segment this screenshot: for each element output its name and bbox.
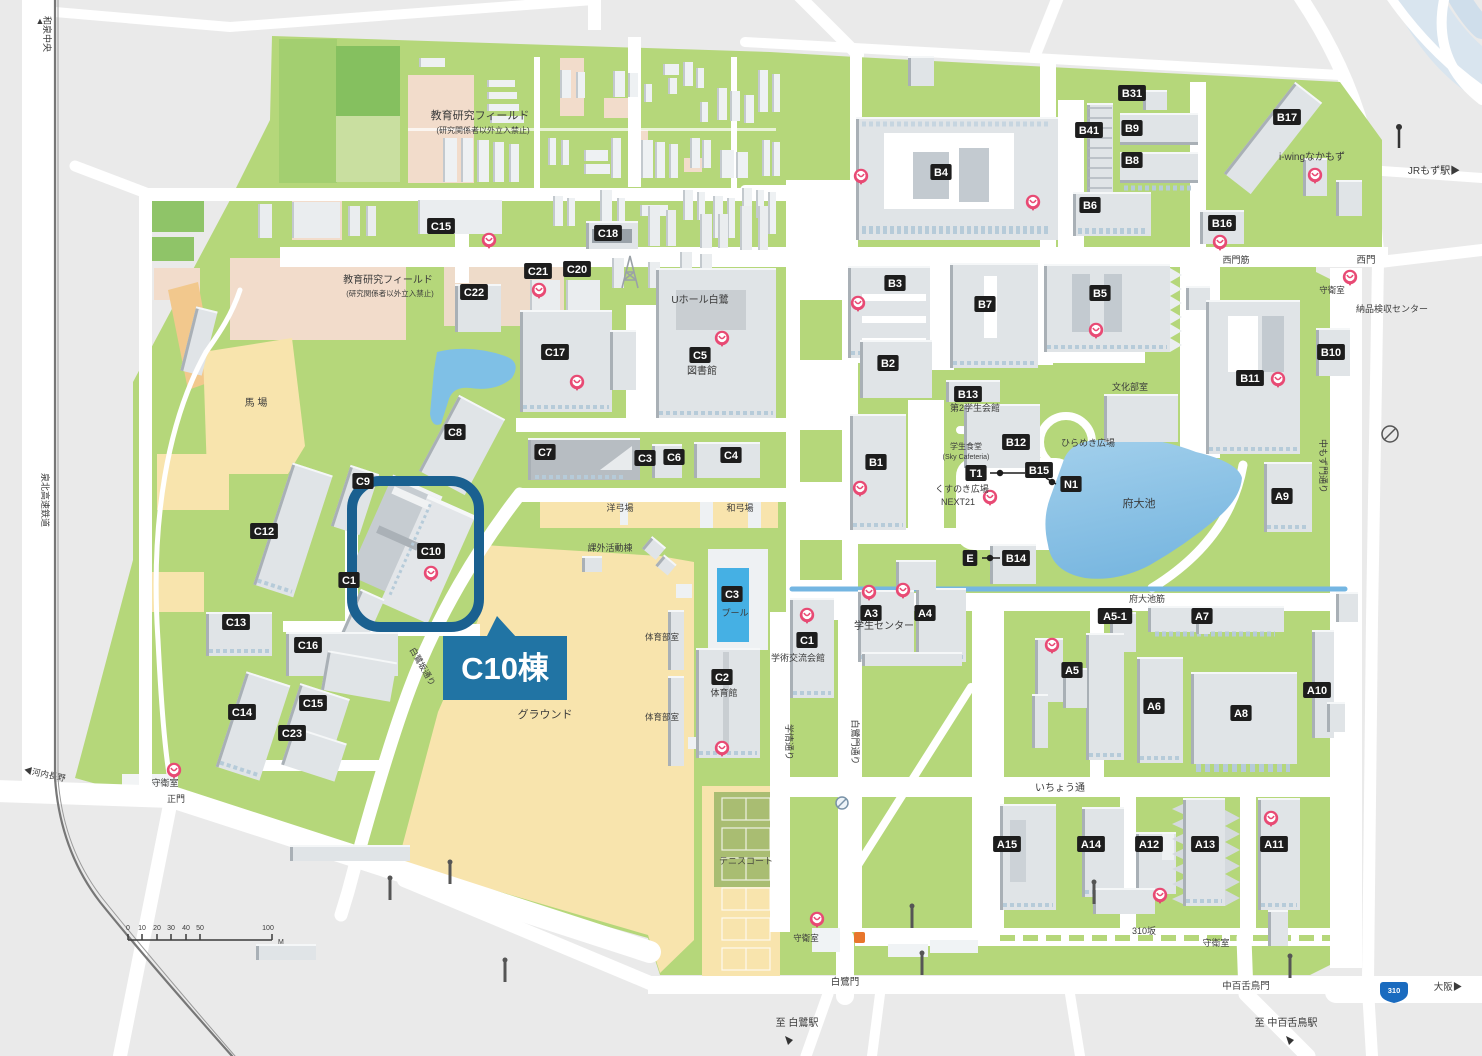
svg-text:C3: C3 [725,589,739,601]
svg-text:T1: T1 [970,468,983,480]
svg-text:ひらめき広場: ひらめき広場 [1061,437,1115,448]
svg-text:至 中百舌鳥駅: 至 中百舌鳥駅 [1255,1016,1318,1029]
svg-text:B3: B3 [888,278,902,290]
svg-text:府大池筋: 府大池筋 [1129,593,1165,604]
svg-text:C9: C9 [356,476,370,488]
svg-text:グラウンド: グラウンド [518,707,573,721]
svg-text:C22: C22 [464,287,484,299]
svg-text:B8: B8 [1125,155,1139,167]
svg-text:B14: B14 [1006,553,1027,565]
svg-text:C4: C4 [724,450,739,462]
svg-text:至 白鷺駅: 至 白鷺駅 [776,1016,819,1029]
svg-text:B7: B7 [978,299,992,311]
svg-text:いちょう通: いちょう通 [1035,782,1085,794]
svg-text:体育部室: 体育部室 [645,632,680,642]
svg-text:C23: C23 [282,728,302,740]
svg-text:C5: C5 [693,350,707,362]
svg-text:20: 20 [153,925,161,932]
svg-text:C18: C18 [598,228,618,240]
svg-text:100: 100 [262,925,274,932]
svg-text:A13: A13 [1195,839,1215,851]
svg-text:中百舌鳥門: 中百舌鳥門 [1222,980,1270,992]
svg-text:A12: A12 [1139,839,1159,851]
svg-text:310坂: 310坂 [1132,926,1156,936]
svg-text:B1: B1 [869,457,883,469]
svg-text:N1: N1 [1064,479,1078,491]
svg-text:府大池: 府大池 [1123,496,1156,510]
svg-text:くすのき広場: くすのき広場 [935,483,989,494]
svg-text:文化部室: 文化部室 [1112,381,1148,392]
svg-text:守衛室: 守衛室 [151,777,178,788]
svg-text:課外活動棟: 課外活動棟 [587,542,632,553]
svg-text:C17: C17 [545,347,565,359]
svg-text:B11: B11 [1240,373,1260,385]
svg-text:A8: A8 [1234,708,1248,720]
svg-text:B10: B10 [1321,347,1341,359]
svg-text:図書館: 図書館 [687,364,717,377]
svg-text:C14: C14 [232,707,253,719]
svg-text:C15: C15 [431,221,451,233]
svg-text:泉北高速鉄道: 泉北高速鉄道 [40,473,51,527]
svg-text:B4: B4 [934,167,949,179]
svg-text:B5: B5 [1093,288,1107,300]
svg-text:和弓場: 和弓場 [726,502,753,513]
svg-text:守衛室: 守衛室 [1319,285,1345,295]
svg-text:C21: C21 [528,266,548,278]
svg-text:教育研究フィールド: 教育研究フィールド [343,273,433,286]
svg-text:B12: B12 [1006,437,1026,449]
svg-text:A6: A6 [1147,701,1161,713]
svg-text:(研究関係者以外立入禁止): (研究関係者以外立入禁止) [436,125,530,135]
svg-text:310: 310 [1388,986,1401,995]
svg-text:白鷺門: 白鷺門 [831,976,860,988]
svg-text:Uホール白鷺: Uホール白鷺 [671,293,728,306]
svg-text:体育部室: 体育部室 [645,712,680,722]
svg-text:中もず門通り: 中もず門通り [1318,439,1329,493]
svg-text:30: 30 [167,925,175,932]
svg-text:和泉中央: 和泉中央 [42,16,53,52]
svg-text:C10棟: C10棟 [461,651,550,686]
svg-text:C20: C20 [567,264,587,276]
svg-text:JRもず駅▶: JRもず駅▶ [1408,165,1460,177]
svg-text:C7: C7 [538,447,552,459]
svg-text:40: 40 [182,925,190,932]
svg-text:B41: B41 [1079,125,1099,137]
svg-text:西門: 西門 [1356,255,1375,266]
svg-text:C15: C15 [303,698,323,710]
svg-text:(Sky Cafeteria): (Sky Cafeteria) [943,454,990,461]
svg-text:NEXT21: NEXT21 [941,497,975,507]
svg-text:学生食堂: 学生食堂 [950,441,982,451]
svg-text:C1: C1 [800,635,814,647]
svg-text:A11: A11 [1264,839,1284,851]
svg-text:C10: C10 [421,546,441,558]
svg-text:B17: B17 [1277,112,1297,124]
svg-text:A5-1: A5-1 [1103,611,1127,623]
svg-text:正門: 正門 [167,794,185,804]
svg-text:A9: A9 [1275,491,1289,503]
svg-text:大阪▶: 大阪▶ [1434,981,1463,993]
svg-text:A15: A15 [997,839,1017,851]
svg-text:B2: B2 [881,358,895,370]
svg-text:第2学生会館: 第2学生会館 [950,402,1000,413]
svg-text:B9: B9 [1125,123,1139,135]
svg-text:洋弓場: 洋弓場 [606,502,633,513]
svg-text:プール: プール [721,608,748,618]
svg-text:C8: C8 [448,427,462,439]
svg-text:M: M [278,939,284,946]
svg-text:E: E [966,553,973,565]
svg-text:テニスコート: テニスコート [719,856,773,866]
svg-text:学生センター: 学生センター [854,619,914,632]
svg-text:C6: C6 [667,452,681,464]
svg-text:(研究関係者以外立入禁止): (研究関係者以外立入禁止) [346,288,434,298]
svg-text:C2: C2 [715,672,729,684]
svg-text:納品検収センター: 納品検収センター [1356,303,1428,314]
svg-text:A7: A7 [1195,611,1209,623]
svg-text:西門筋: 西門筋 [1222,254,1249,265]
svg-text:A14: A14 [1081,839,1102,851]
svg-text:教育研究フィールド: 教育研究フィールド [431,108,530,122]
svg-text:体育館: 体育館 [710,687,737,698]
svg-text:学情通り: 学情通り [784,724,795,760]
svg-text:0: 0 [126,925,130,932]
svg-text:白鷺門通り: 白鷺門通り [850,719,861,764]
svg-text:50: 50 [196,925,204,932]
svg-text:C13: C13 [226,617,246,629]
svg-text:C1: C1 [342,575,356,587]
svg-text:A10: A10 [1307,685,1327,697]
svg-text:B31: B31 [1122,88,1142,100]
svg-text:C16: C16 [298,640,318,652]
svg-text:10: 10 [138,925,146,932]
svg-text:C3: C3 [638,453,652,465]
svg-text:B15: B15 [1029,465,1049,477]
svg-text:馬 場: 馬 場 [245,396,268,409]
svg-text:A5: A5 [1065,665,1079,677]
svg-text:A4: A4 [918,608,933,620]
svg-text:C12: C12 [254,526,274,538]
svg-text:守衛室: 守衛室 [793,933,819,943]
svg-text:守衛室: 守衛室 [1202,937,1229,948]
svg-text:B13: B13 [958,389,978,401]
svg-text:B16: B16 [1212,218,1232,230]
svg-text:B6: B6 [1083,200,1097,212]
svg-text:学術交流会館: 学術交流会館 [771,652,825,663]
svg-text:A3: A3 [864,608,878,620]
svg-text:i-wingなかもず: i-wingなかもず [1279,151,1345,163]
